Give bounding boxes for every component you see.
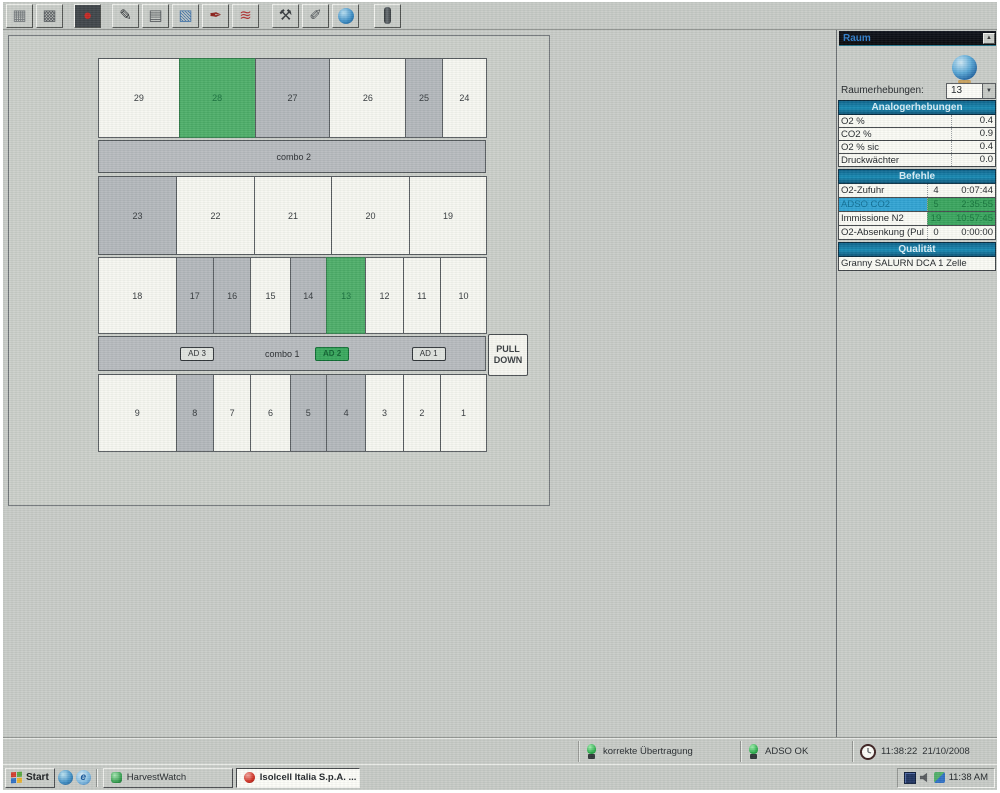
analog-value: 0.9 [951, 128, 995, 140]
room-cell-number: 28 [212, 93, 222, 103]
qualitaet-section-header: Qualität [838, 242, 996, 257]
clock-icon [860, 744, 876, 760]
thermometer-icon-button[interactable] [374, 4, 401, 28]
room-cell-number: 6 [268, 408, 273, 418]
table-chart-icon: ▧ [178, 8, 192, 23]
room-cell-number: 12 [379, 291, 389, 301]
tools-icon: ⚒ [279, 8, 292, 23]
befehle-time: 0:07:44 [944, 185, 995, 196]
room-cell-number: 4 [344, 408, 349, 418]
ink-pen-icon: ✐ [309, 8, 322, 23]
keyboard-layout-icon[interactable] [904, 772, 916, 784]
signature-icon-button[interactable]: ✒ [202, 4, 229, 28]
room-cell-24[interactable]: 24 [442, 58, 487, 138]
record-icon-button[interactable]: ● [74, 4, 101, 28]
room-detail-panel: Raum ▲ Raumerhebungen: 13 ▼ Analogerhebu… [836, 30, 997, 737]
thermometer-icon [384, 7, 391, 24]
tools-icon-button[interactable]: ⚒ [272, 4, 299, 28]
room-cell-number: 15 [265, 291, 275, 301]
room-map-panel: 292827262524combo 2232221201918171615141… [8, 35, 550, 506]
room-cell-number: 11 [417, 291, 426, 301]
main-area: 292827262524combo 2232221201918171615141… [3, 30, 836, 737]
room-cell-16[interactable]: 16 [213, 257, 251, 334]
system-tray: 11:38 AM [897, 768, 995, 788]
table-icon: ▤ [148, 8, 162, 23]
room-selector-dropdown[interactable]: 13 ▼ [946, 83, 996, 99]
application-window: ▦▩●✎▤▧✒≋⚒✐ 292827262524combo 22322212019… [3, 2, 997, 790]
befehle-count: 4 [928, 185, 944, 196]
analog-value: 0.4 [951, 141, 995, 153]
room-row: 292827262524 [98, 58, 486, 138]
record-icon: ● [83, 8, 92, 23]
green-led-icon [748, 744, 759, 759]
panel-title: Raum [843, 33, 871, 44]
room-row: 2322212019 [98, 176, 486, 255]
analog-label: Druckwächter [839, 155, 951, 166]
analog-value: 0.4 [951, 115, 995, 127]
status-date: 21/10/2008 [922, 746, 970, 757]
room-cell-5[interactable]: 5 [290, 374, 327, 452]
combo-1-bar: combo 1AD 3AD 2AD 1 [98, 336, 486, 371]
room-cell-4[interactable]: 4 [326, 374, 366, 452]
panel-titlebar: Raum ▲ [839, 31, 996, 46]
room-cell-28[interactable]: 28 [179, 58, 256, 138]
quality-value: Granny SALURN DCA 1 Zelle [838, 257, 996, 271]
analog-row: O2 %0.4 [838, 115, 996, 128]
befehle-row: Immissione N21910:57:45 [838, 212, 996, 226]
befehle-label: Immissione N2 [839, 212, 927, 225]
room-cell-number: 16 [227, 291, 237, 301]
befehle-table: O2-Zufuhr40:07:44ADSO CO252:35:55Immissi… [838, 184, 996, 240]
room-cell-number: 23 [132, 211, 142, 221]
signature-icon: ✒ [209, 8, 222, 23]
room-cell-number: 14 [303, 291, 313, 301]
tray-clock: 11:38 AM [949, 772, 988, 783]
grid-icon: ▦ [12, 8, 26, 23]
status-connection: korrekte Übertragung [578, 741, 738, 762]
room-cell-6[interactable]: 6 [250, 374, 290, 452]
green-led-icon [586, 744, 597, 759]
status-adso: ADSO OK [740, 741, 850, 762]
room-cell-18[interactable]: 18 [98, 257, 177, 334]
taskbar-separator [96, 769, 98, 787]
room-cell-number: 24 [459, 93, 469, 103]
analog-row: CO2 %0.9 [838, 128, 996, 141]
quick-launch-icon-1[interactable] [58, 770, 73, 785]
befehle-label: O2-Absenkung (Pul [839, 226, 927, 239]
befehle-values: 40:07:44 [927, 184, 995, 197]
start-button[interactable]: Start [5, 768, 55, 788]
befehle-label: ADSO CO2 [839, 198, 927, 211]
room-cell-number: 1 [461, 408, 466, 418]
task-button-harvestwatch[interactable]: HarvestWatch [103, 768, 233, 788]
room-cell-19[interactable]: 19 [409, 176, 487, 255]
room-cell-number: 17 [190, 291, 200, 301]
room-cell-number: 10 [459, 291, 469, 301]
room-cell-number: 5 [306, 408, 311, 418]
taskbar: Start e HarvestWatch Isolcell Italia S.p… [3, 764, 997, 790]
analog-table: O2 %0.4CO2 %0.9O2 % sic0.4Druckwächter0.… [838, 115, 996, 167]
room-cell-10[interactable]: 10 [440, 257, 487, 334]
quick-launch-browser-icon[interactable]: e [76, 770, 91, 785]
room-cell-number: 27 [287, 93, 297, 103]
room-cell-number: 29 [134, 93, 144, 103]
befehle-values: 52:35:55 [927, 198, 995, 211]
room-cell-14[interactable]: 14 [290, 257, 327, 334]
room-row: 987654321 [98, 374, 486, 452]
befehle-row: O2-Absenkung (Pul00:00:00 [838, 226, 996, 240]
room-cell-26[interactable]: 26 [329, 58, 406, 138]
befehle-values: 00:00:00 [927, 226, 995, 239]
room-selector-row: Raumerhebungen: 13 ▼ [841, 82, 996, 99]
calendar-table-icon: ▩ [42, 8, 56, 23]
room-cell-9[interactable]: 9 [98, 374, 177, 452]
ink-pen-icon-button[interactable]: ✐ [302, 4, 329, 28]
befehle-section-header: Befehle [838, 169, 996, 184]
befehle-time: 0:00:00 [944, 227, 995, 238]
task-button-isolcell[interactable]: Isolcell Italia S.p.A. ... [236, 768, 360, 788]
room-cell-2[interactable]: 2 [403, 374, 441, 452]
room-cell-23[interactable]: 23 [98, 176, 177, 255]
globe-icon [952, 55, 977, 80]
isolcell-app-icon [244, 772, 255, 783]
room-cell-12[interactable]: 12 [365, 257, 403, 334]
combo-2-bar: combo 2 [98, 140, 486, 173]
calendar-table-icon-button[interactable]: ▩ [36, 4, 63, 28]
grid-icon-button[interactable]: ▦ [6, 4, 33, 28]
windows-logo-icon [11, 772, 22, 784]
room-row: 181716151413121110 [98, 257, 486, 334]
room-cell-number: 3 [382, 408, 387, 418]
start-label: Start [26, 772, 49, 783]
ad-button-ad-1[interactable]: AD 1 [412, 347, 446, 361]
task-label-isolcell: Isolcell Italia S.p.A. ... [260, 772, 357, 783]
analog-section-header: Analogerhebungen [838, 100, 996, 115]
table-icon-button[interactable]: ▤ [142, 4, 169, 28]
analog-row: O2 % sic0.4 [838, 141, 996, 154]
room-selector-value: 13 [947, 85, 982, 96]
analog-row: Druckwächter0.0 [838, 154, 996, 167]
pull-down-button[interactable]: PULL DOWN [488, 334, 528, 376]
room-cell-22[interactable]: 22 [176, 176, 255, 255]
status-bar: korrekte Übertragung ADSO OK 11:38:22 21… [3, 737, 997, 764]
line-chart-icon: ≋ [239, 8, 252, 23]
room-cell-13[interactable]: 13 [326, 257, 366, 334]
room-cell-number: 7 [230, 408, 235, 418]
status-connection-label: korrekte Übertragung [603, 746, 693, 757]
room-cell-number: 18 [132, 291, 142, 301]
analog-label: CO2 % [839, 129, 951, 140]
room-cell-number: 8 [192, 408, 197, 418]
globe-toolbar-icon-button[interactable] [332, 4, 359, 28]
befehle-count: 19 [928, 213, 944, 224]
room-cell-8[interactable]: 8 [176, 374, 214, 452]
room-cell-number: 26 [363, 93, 373, 103]
analog-label: O2 % [839, 116, 951, 127]
room-cell-7[interactable]: 7 [213, 374, 251, 452]
room-cell-1[interactable]: 1 [440, 374, 487, 452]
room-cell-29[interactable]: 29 [98, 58, 180, 138]
combo-1-bar-label: combo 1 [265, 349, 300, 359]
befehle-count: 5 [928, 199, 944, 210]
line-chart-icon-button[interactable]: ≋ [232, 4, 259, 28]
room-cell-number: 13 [341, 291, 351, 301]
room-cell-number: 9 [135, 408, 140, 418]
room-cell-15[interactable]: 15 [250, 257, 290, 334]
volume-icon[interactable] [920, 773, 930, 783]
combo-2-bar-label: combo 2 [277, 152, 312, 162]
status-time: 11:38:22 [881, 746, 917, 757]
room-cell-11[interactable]: 11 [403, 257, 441, 334]
room-cell-number: 22 [210, 211, 220, 221]
room-cell-3[interactable]: 3 [365, 374, 403, 452]
task-label-harvestwatch: HarvestWatch [127, 772, 186, 783]
ad-button-ad-2[interactable]: AD 2 [315, 347, 349, 361]
room-cell-25[interactable]: 25 [405, 58, 443, 138]
room-grid: 292827262524combo 2232221201918171615141… [98, 58, 486, 454]
befehle-row: O2-Zufuhr40:07:44 [838, 184, 996, 198]
room-cell-number: 20 [365, 211, 375, 221]
room-cell-27[interactable]: 27 [255, 58, 331, 138]
befehle-values: 1910:57:45 [927, 212, 995, 225]
ad-button-ad-3[interactable]: AD 3 [180, 347, 214, 361]
status-clock: 11:38:22 21/10/2008 [852, 741, 996, 762]
chevron-down-icon[interactable]: ▼ [982, 84, 995, 98]
befehle-label: O2-Zufuhr [839, 184, 927, 197]
befehle-row: ADSO CO252:35:55 [838, 198, 996, 212]
status-adso-label: ADSO OK [765, 746, 808, 757]
globe-toolbar-icon [338, 8, 354, 24]
room-cell-20[interactable]: 20 [331, 176, 410, 255]
befehle-time: 2:35:55 [944, 199, 995, 210]
analog-value: 0.0 [951, 154, 995, 166]
room-cell-21[interactable]: 21 [254, 176, 332, 255]
analog-label: O2 % sic [839, 142, 951, 153]
panel-scroll-up-button[interactable]: ▲ [983, 33, 995, 44]
report-edit-icon-button[interactable]: ✎ [112, 4, 139, 28]
toolbar: ▦▩●✎▤▧✒≋⚒✐ [3, 2, 997, 30]
room-cell-17[interactable]: 17 [176, 257, 214, 334]
harvestwatch-app-icon [111, 772, 122, 783]
room-cell-number: 25 [419, 93, 429, 103]
room-selector-label: Raumerhebungen: [841, 85, 924, 96]
room-cell-number: 19 [443, 211, 453, 221]
network-icon[interactable] [934, 772, 945, 783]
report-edit-icon: ✎ [119, 8, 132, 23]
room-cell-number: 21 [288, 211, 298, 221]
table-chart-icon-button[interactable]: ▧ [172, 4, 199, 28]
befehle-time: 10:57:45 [944, 213, 995, 224]
detail-sections: Analogerhebungen O2 %0.4CO2 %0.9O2 % sic… [838, 100, 996, 271]
room-cell-number: 2 [419, 408, 424, 418]
befehle-count: 0 [928, 227, 944, 238]
